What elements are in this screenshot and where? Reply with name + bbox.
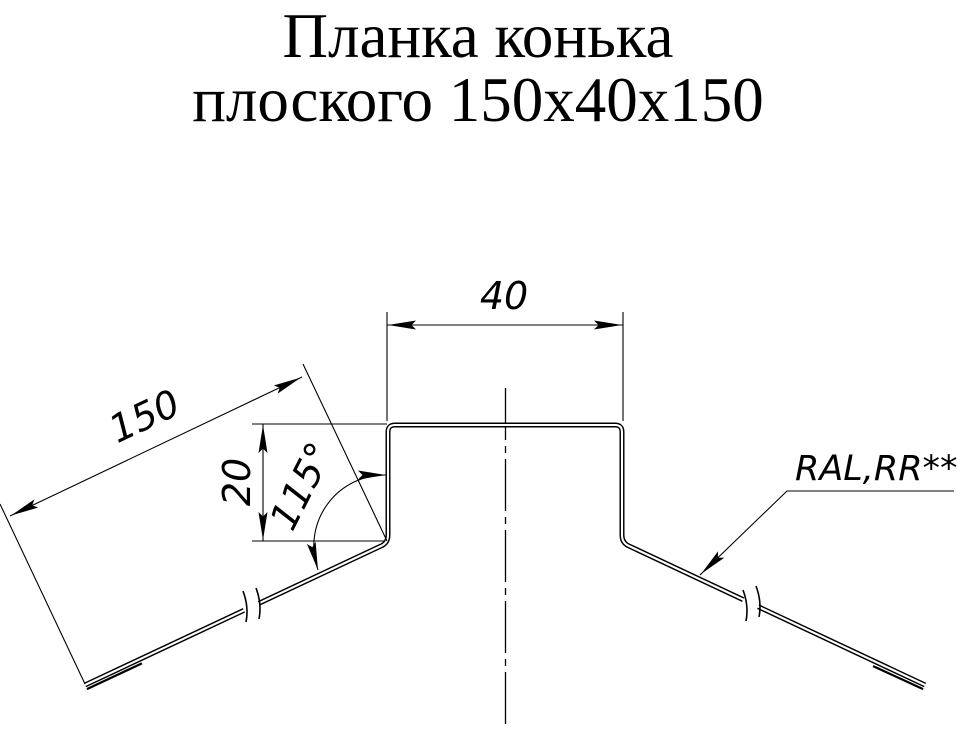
leader-line	[700, 491, 954, 575]
right-break-gap	[743, 600, 758, 607]
right-hem-fold	[873, 666, 923, 689]
dimension-value-40: 40	[480, 274, 528, 318]
ridge-strip-drawing: Планка конька плоского 150х40х150	[0, 0, 957, 731]
dimension-value-115deg: 115°	[261, 435, 342, 537]
left-hem-fold	[87, 663, 142, 689]
break-marks	[243, 586, 760, 622]
angle-arc	[314, 475, 386, 570]
dimension-value-20: 20	[215, 458, 259, 506]
arrowhead	[9, 499, 38, 519]
extension-line	[0, 504, 85, 684]
arrowhead	[307, 542, 323, 571]
title-line-2: плоского 150х40х150	[192, 65, 764, 135]
arrowhead	[274, 373, 303, 393]
drawing-canvas: Планка конька плоского 150х40х150	[0, 0, 957, 731]
title-block: Планка конька плоского 150х40х150	[192, 1, 764, 135]
title-line-1: Планка конька	[283, 1, 674, 71]
coating-label: RAL,RR**	[795, 449, 957, 489]
arrowhead	[358, 471, 386, 480]
dimension-value-150: 150	[102, 381, 186, 452]
leader-coating-note: RAL,RR**	[698, 449, 957, 577]
